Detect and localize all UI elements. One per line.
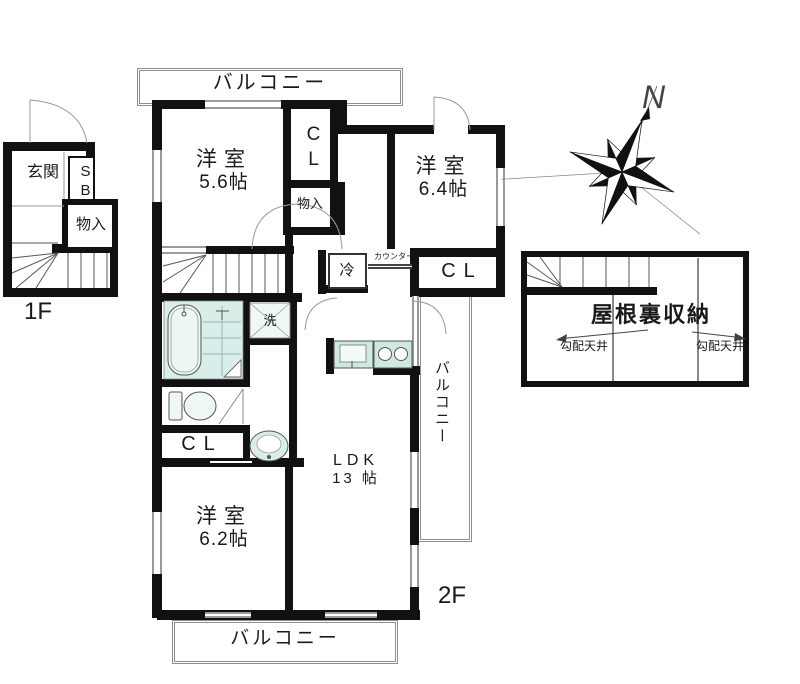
floor2-label: 2F [428,582,476,610]
toilet [169,392,216,420]
balcony-right-label: バルコニー [426,345,450,460]
balcony-top-label: バルコニー [137,72,403,95]
room-ne-name: 洋室 [390,155,497,179]
entrance-label: 玄関 [20,164,66,182]
kitchen-sink [334,341,373,368]
room-nw-size: 5.6帖 [163,172,285,194]
fridge-label: 冷 [328,254,366,288]
attic-name-label: 屋根裏収納 [556,302,746,327]
bathroom [164,301,243,379]
closet-ne-label: CL [419,254,505,288]
room-sw-label: 洋室 6.2帖 [163,505,285,551]
closet-nw-label: CL [296,118,324,180]
room-ne-door-arc [434,97,470,130]
room-ne-size: 6.4帖 [390,179,497,201]
balcony-bottom-label: バルコニー [172,628,398,650]
ldk-size: 13 帖 [300,470,412,487]
storage-label-1f: 物入 [70,216,112,233]
balcony-door-arc [414,301,446,334]
slope-left-label: 勾配天井 [552,340,616,354]
room-sw-name: 洋室 [163,505,285,529]
room-nw-name: 洋室 [163,148,285,172]
laundry-label: 洗 [250,305,290,337]
counter-label: カウンター [374,252,414,261]
slope-right-label: 勾配天井 [690,340,750,354]
attic-stairs [527,257,649,287]
floor-plan: N 1F 玄関 SB 物入 バルコニー 洋室 5.6帖 CL 物入 洋室 6.4… [0,0,800,684]
washbasin [250,431,288,461]
room-ne-label: 洋室 6.4帖 [390,155,497,201]
room-sw-size: 6.2帖 [163,529,285,551]
compass: N [499,79,731,258]
kitchen-stove [374,341,412,368]
room-nw-label: 洋室 5.6帖 [163,148,285,194]
floor2-stairs [163,254,278,293]
ldk-door-arc [305,298,337,330]
storage-label-2f: 物入 [288,197,332,212]
plan-linework: N [0,0,800,684]
north-label: N [642,79,666,115]
floor1-label: 1F [14,298,62,326]
toilet-door-swing [219,389,243,424]
compass-rose [499,80,731,258]
shoe-box-label: SB [70,160,94,204]
ldk-label: LDK 13 帖 [300,452,412,488]
entrance-door-arc [30,100,87,143]
closet-sw-label: CL [160,429,244,459]
ldk-name: LDK [300,452,412,470]
